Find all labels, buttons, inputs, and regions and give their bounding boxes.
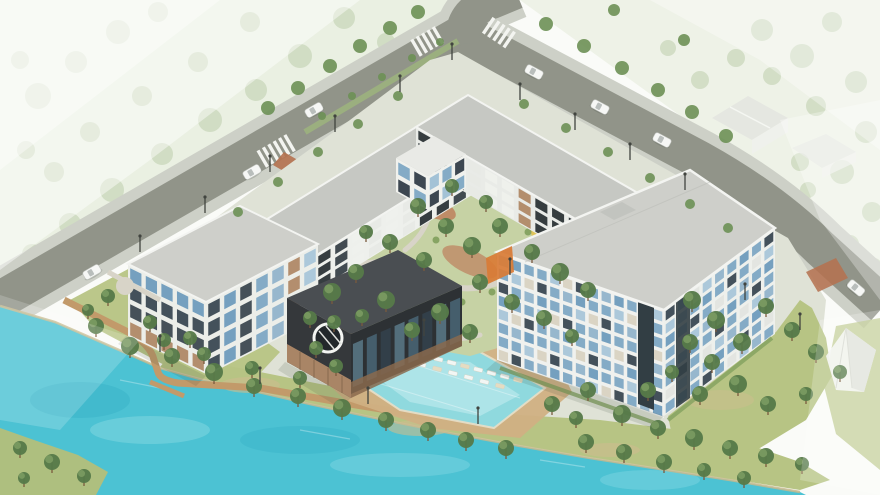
tree-canopy-highlight [493, 219, 501, 227]
tree-canopy-highlight [439, 219, 447, 227]
tree-canopy-highlight [310, 342, 317, 349]
street-tree [378, 73, 386, 81]
tree-canopy-highlight [304, 312, 311, 319]
tree-canopy-highlight [349, 265, 357, 273]
tree-canopy-highlight [14, 442, 21, 449]
tree-canopy-highlight [432, 304, 441, 313]
street-tree [408, 54, 416, 62]
tree-canopy-highlight [360, 226, 367, 233]
light-head [158, 334, 161, 337]
light-head [138, 234, 141, 237]
tree-canopy-highlight [734, 334, 743, 343]
shrub [489, 289, 496, 296]
street-tree [539, 17, 553, 31]
street-tree [723, 223, 733, 233]
street-tree [577, 39, 591, 53]
street-tree [615, 61, 629, 75]
tree-canopy-highlight [641, 383, 649, 391]
tree-canopy-highlight [78, 470, 85, 477]
street-tree [685, 199, 695, 209]
light-head [422, 318, 425, 321]
tree-canopy-highlight [464, 238, 473, 247]
tree-canopy-highlight [499, 441, 507, 449]
tree-canopy-highlight [684, 292, 693, 301]
tree-canopy-highlight [738, 472, 745, 479]
tree-canopy-highlight [417, 253, 425, 261]
street-tree [273, 177, 283, 187]
tree-canopy-highlight [552, 264, 561, 273]
tree-canopy-highlight [246, 362, 253, 369]
light-head [366, 386, 369, 389]
tree-canopy-highlight [785, 323, 793, 331]
light-head [203, 195, 206, 198]
tree-canopy-highlight [330, 360, 337, 367]
tree-canopy-highlight [45, 455, 53, 463]
tree-canopy-highlight [723, 441, 731, 449]
tree-canopy-highlight [294, 372, 301, 379]
light-head [573, 112, 576, 115]
tree-canopy-highlight [581, 283, 589, 291]
faded-tree [660, 40, 676, 56]
tree-canopy-highlight [800, 388, 807, 395]
tree-canopy-highlight [666, 366, 673, 373]
street-tree [678, 34, 690, 46]
lake-light-patch [90, 416, 210, 444]
faded-tree [691, 71, 709, 89]
tree-canopy-highlight [334, 400, 343, 409]
tree-canopy-highlight [198, 348, 205, 355]
light-head [258, 366, 261, 369]
tree-canopy-highlight [291, 389, 299, 397]
light-head [743, 282, 746, 285]
tree-canopy-highlight [698, 464, 705, 471]
tree-canopy-highlight [378, 292, 387, 301]
street-tree [353, 39, 367, 53]
tree-canopy-highlight [102, 290, 109, 297]
light-head [268, 154, 271, 157]
tree-canopy-highlight [759, 299, 767, 307]
tree-canopy-highlight [545, 397, 553, 405]
street-tree [603, 147, 613, 157]
light-head [398, 74, 401, 77]
tree-canopy-highlight [383, 235, 391, 243]
rendering-canvas [0, 0, 880, 495]
shrub [433, 237, 440, 244]
tree-canopy-highlight [247, 379, 255, 387]
tree-canopy-highlight [411, 199, 419, 207]
street-tree [685, 105, 699, 119]
tree-canopy-highlight [759, 449, 767, 457]
street-tree [383, 21, 397, 35]
tree-canopy-highlight [683, 335, 691, 343]
tree-canopy-highlight [421, 423, 429, 431]
rendering-stage [0, 0, 880, 495]
light-head [476, 406, 479, 409]
tree-canopy-highlight [473, 275, 481, 283]
street-tree [436, 38, 444, 46]
tree-canopy-highlight [356, 310, 363, 317]
tree-canopy-highlight [693, 387, 701, 395]
light-head [798, 312, 801, 315]
street-tree [519, 99, 529, 109]
tree-canopy-highlight [446, 180, 453, 187]
faded-tree [727, 49, 745, 67]
tree-canopy-highlight [19, 473, 25, 479]
tree-canopy-highlight [459, 433, 467, 441]
tree-canopy-highlight [328, 316, 335, 323]
street-tree [313, 147, 323, 157]
tree-canopy-highlight [579, 435, 587, 443]
tree-canopy-highlight [379, 413, 387, 421]
tree-canopy-highlight [686, 430, 695, 439]
tree-canopy-highlight [525, 245, 533, 253]
tree-canopy-highlight [614, 406, 623, 415]
street-tree [353, 119, 363, 129]
street-tree [291, 81, 305, 95]
tree-canopy-highlight [165, 349, 173, 357]
tree-canopy-highlight [505, 295, 513, 303]
tree-canopy-highlight [651, 421, 659, 429]
street-tree [393, 91, 403, 101]
light-head [333, 114, 336, 117]
light-head [628, 142, 631, 145]
street-tree [561, 123, 571, 133]
street-tree [348, 92, 356, 100]
street-tree [719, 129, 733, 143]
light-head [508, 257, 511, 260]
tree-canopy-highlight [480, 196, 487, 203]
tree-canopy-highlight [761, 397, 769, 405]
street-tree [261, 101, 275, 115]
tree-canopy-highlight [705, 355, 713, 363]
tree-canopy-highlight [617, 445, 625, 453]
tree-canopy-highlight [324, 284, 333, 293]
street-tree [233, 207, 243, 217]
street-tree [608, 4, 620, 16]
lake-light-patch [330, 453, 470, 477]
tree-canopy-highlight [463, 325, 471, 333]
tree-canopy-highlight [730, 376, 739, 385]
street-tree [651, 83, 665, 97]
tree-canopy-highlight [537, 311, 545, 319]
light-head [683, 172, 686, 175]
tree-canopy-highlight [581, 383, 589, 391]
tree-canopy-highlight [566, 330, 573, 337]
street-tree [645, 173, 655, 183]
light-head [518, 82, 521, 85]
tree-canopy-highlight [657, 455, 665, 463]
street-tree [411, 5, 425, 19]
tree-canopy-highlight [184, 332, 191, 339]
light-head [450, 42, 453, 45]
tree-canopy-highlight [708, 312, 717, 321]
tree-canopy-highlight [144, 316, 151, 323]
street-tree [323, 59, 337, 73]
tree-canopy-highlight [570, 412, 577, 419]
tree-canopy-highlight [206, 364, 215, 373]
tree-canopy-highlight [83, 305, 89, 311]
tree-canopy-highlight [405, 323, 413, 331]
